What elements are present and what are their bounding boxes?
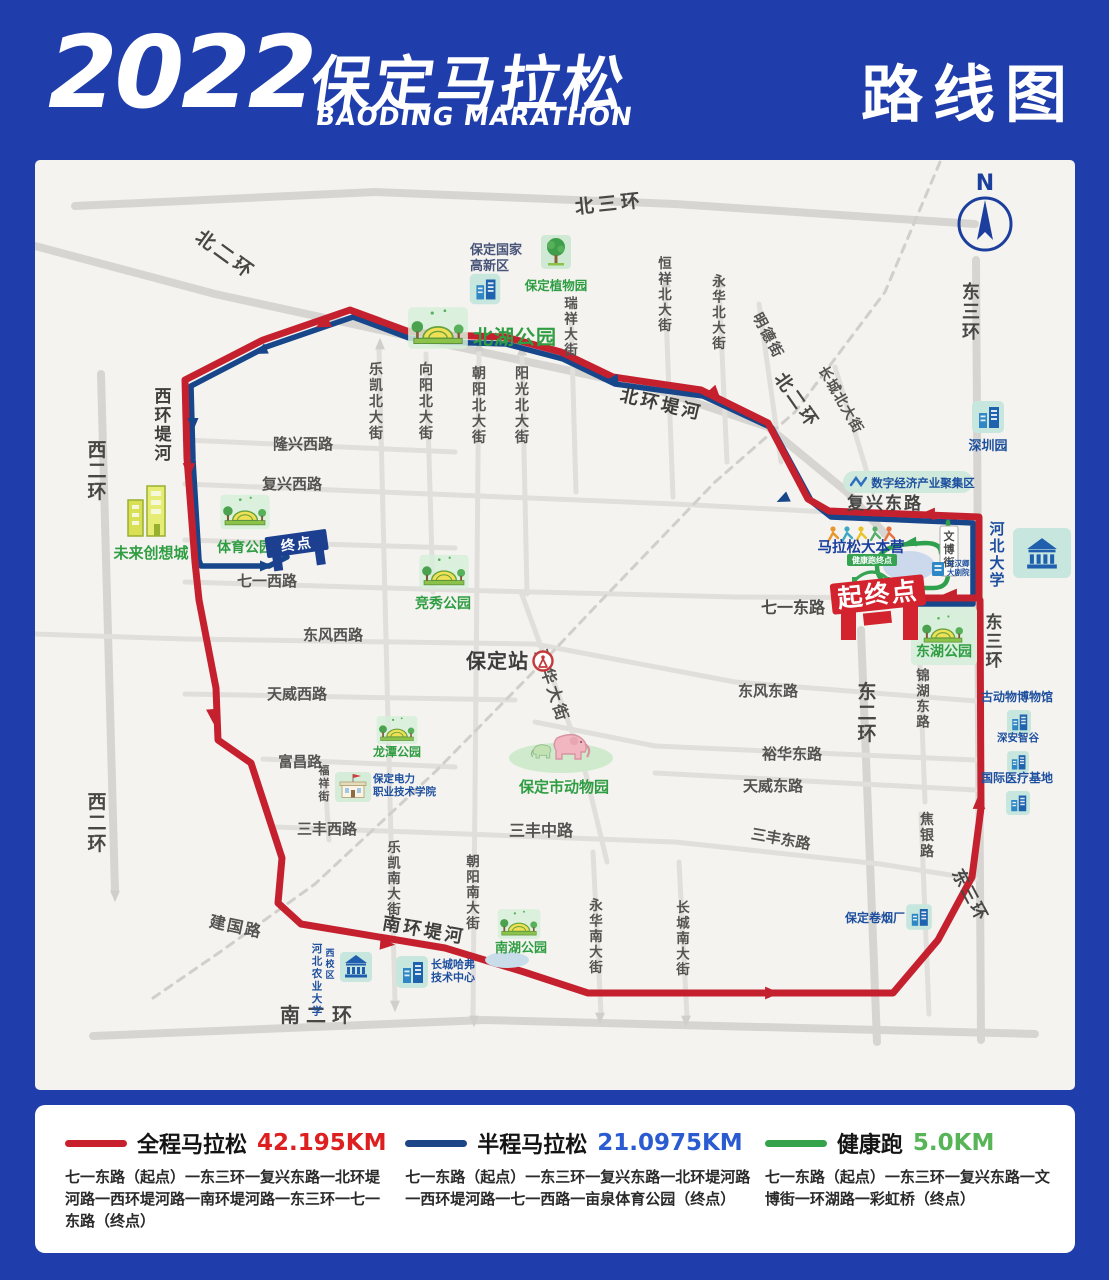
tree-icon xyxy=(541,235,571,269)
road-label-lekai_n: 乐凯北大街 xyxy=(368,361,383,442)
park-icon xyxy=(377,716,418,744)
landmark-dabenying: 马拉松大本营 xyxy=(818,526,905,556)
landmark-hebeidaxue: 河北大学 xyxy=(989,520,1071,589)
svg-text:健康跑终点: 健康跑终点 xyxy=(852,555,892,565)
landmark-dianli: 保定电力职业技术学院 xyxy=(335,772,436,802)
legend-route-full: 七一东路（起点）一东三环一复兴东路一北环堤河路一西环堤河路一南环堤河路一东三环一… xyxy=(65,1167,391,1232)
building-icon xyxy=(1007,751,1029,773)
road-label-ruixiang: 瑞祥大街 xyxy=(563,295,578,359)
building-icon xyxy=(972,401,1004,433)
railway-station-icon xyxy=(534,652,553,671)
landmark-nanhu: 南湖公园 xyxy=(485,909,547,968)
building-icon xyxy=(1006,791,1030,815)
road-label-chaoyang_n: 朝阳北大街 xyxy=(471,365,486,446)
legend-title-full: 全程马拉松 xyxy=(137,1127,247,1159)
landmark-haval-label: 长城哈弗技术中心 xyxy=(431,957,475,984)
legend-line-health xyxy=(765,1140,827,1147)
temple-icon xyxy=(340,952,372,982)
landmark-tiyu-label: 体育公园 xyxy=(217,539,273,556)
landmark-bdstation: 保定站 xyxy=(465,649,553,673)
road-label-w2h_s: 西二环 xyxy=(87,791,106,855)
park-icon xyxy=(920,614,967,646)
legend-line-full xyxy=(65,1140,127,1147)
road-label-tianwei_e: 天威东路 xyxy=(743,777,804,795)
landmark-yiliao-label: 国际医疗基地 xyxy=(981,770,1053,785)
landmark-jingxiu-label: 竞秀公园 xyxy=(415,595,471,612)
landmark-dabenying-label: 马拉松大本营 xyxy=(818,538,905,556)
legend-item-half: 半程马拉松21.0975KM七一东路（起点）一东三环一复兴东路一北环堤河路一西环… xyxy=(405,1127,751,1239)
landmark-donghu: 东湖公园 xyxy=(911,607,977,665)
landmark-donghu-label: 东湖公园 xyxy=(916,643,972,660)
park-icon xyxy=(408,307,468,348)
building-icon xyxy=(906,904,932,930)
landmark-nongda-label2: 西校区 xyxy=(325,948,335,981)
temple-icon xyxy=(1020,534,1063,575)
legend-title-health: 健康跑 xyxy=(837,1127,903,1159)
landmark-longtan: 龙潭公园 xyxy=(373,716,421,759)
park-icon xyxy=(498,909,541,939)
road-label-e2h: 东二环 xyxy=(857,680,876,745)
landmark-beihu-label: 北湖公园 xyxy=(473,325,557,349)
road-label-fuxing_e: 复兴东路 xyxy=(846,493,923,514)
road-label-fuxing_w: 复兴西路 xyxy=(261,475,323,493)
landmark-gaoxinqu: 保定国家高新区 xyxy=(469,242,523,304)
road-label-e3h_m: 东三环 xyxy=(986,612,1003,671)
road-label-changcheng_s: 长城南大街 xyxy=(675,899,690,978)
road-label-fuchang: 富昌路 xyxy=(278,753,322,771)
landmark-hebeidaxue-label: 河北大学 xyxy=(989,520,1004,589)
legend-route-health: 七一东路（起点）一东三环一复兴东路一文博街一环湖路一彩虹桥（终点） xyxy=(765,1167,1057,1211)
landmark-gaoxinqu-label: 保定国家高新区 xyxy=(469,242,523,274)
building-icon xyxy=(1007,710,1031,734)
legend-line-half xyxy=(405,1140,467,1147)
road-label-mingde: 明德街 xyxy=(749,310,788,362)
landmark-longtan-label: 龙潭公园 xyxy=(373,744,421,759)
landmark-shenzhenyuan: 深圳园 xyxy=(968,401,1007,454)
city-icon xyxy=(128,486,165,536)
landmark-nongda-label: 河北农业大学 xyxy=(311,943,323,1018)
road-label-jianguolu: 建国路 xyxy=(208,912,265,942)
half-finish-marker: 终点 xyxy=(264,529,330,572)
landmark-juanyan: 保定卷烟厂 xyxy=(844,904,932,930)
road-label-xihuandihe: 西环堤河 xyxy=(155,387,173,464)
road-label-lekai_s: 乐凯南大街 xyxy=(386,839,401,918)
landmark-yiliao: 国际医疗基地 xyxy=(981,770,1053,815)
building-icon xyxy=(396,956,428,988)
legend-route-half: 七一东路（起点）一东三环一复兴东路一北环堤河路一西环堤河路一七一西路一亩泉体育公… xyxy=(405,1167,751,1211)
road-label-dongfeng_e: 东风东路 xyxy=(738,682,799,700)
road-label-sanfeng_m: 三丰中路 xyxy=(509,821,574,840)
landmark-zhiwuyuan-label: 保定植物园 xyxy=(524,278,588,293)
landmark-shenan-label: 深安智谷 xyxy=(997,731,1039,744)
route-map: N 北三环北二环北二环西二环西二环南二环东二环东三环东三环东三环西环堤河北环堤河… xyxy=(35,160,1075,1090)
legend-panel: 全程马拉松42.195KM七一东路（起点）一东三环一复兴东路一北环堤河路一西环堤… xyxy=(35,1105,1075,1253)
road-label-changcheng_n: 长城北大街 xyxy=(815,363,867,436)
road-label-dongfeng_w: 东风西路 xyxy=(303,626,364,644)
landmark-shuzijingji-label: 数字经济产业聚集区 xyxy=(871,476,975,490)
landmark-guanhanqing-label: 关汉卿大剧院 xyxy=(947,558,970,577)
park-icon xyxy=(419,555,468,589)
road-label-sanfeng_w: 三丰西路 xyxy=(297,820,358,838)
header-year: 2022 xyxy=(48,14,314,131)
road-label-qiyi_w: 七一西路 xyxy=(237,572,298,590)
landmark-shuzijingji: 数字经济产业聚集区 xyxy=(843,471,975,493)
road-label-n2h_w: 北二环 xyxy=(191,226,260,284)
landmark-gudongwu: 古动物博物馆 xyxy=(981,689,1053,734)
road-label-jiaoyin: 焦银路 xyxy=(919,811,935,860)
landmark-zoo-label: 保定市动物园 xyxy=(518,778,609,796)
road-label-jinhu_e: 锦湖东路 xyxy=(916,667,930,731)
elephants-icon xyxy=(532,735,590,759)
landmark-tiyu: 体育公园 xyxy=(217,495,273,556)
landmark-beihu: 北湖公园 xyxy=(408,307,557,349)
header-title-en: BAODING MARATHON xyxy=(314,102,635,131)
legend-distance-full: 42.195KM xyxy=(257,1130,386,1156)
road-label-yonghua_s: 永华南大街 xyxy=(588,897,603,976)
road-label-yangguang_n: 阳光北大街 xyxy=(514,366,529,446)
landmark-shenzhenyuan-label: 深圳园 xyxy=(968,438,1007,454)
school-icon xyxy=(335,772,371,802)
road-label-chaoyang_s: 朝阳南大街 xyxy=(465,853,480,932)
landmark-gudongwu-label: 古动物博物馆 xyxy=(981,689,1053,704)
legend-item-health: 健康跑5.0KM七一东路（起点）一东三环一复兴东路一文博街一环湖路一彩虹桥（终点… xyxy=(765,1127,1057,1239)
landmark-nanhu-label: 南湖公园 xyxy=(495,940,547,956)
legend-title-half: 半程马拉松 xyxy=(477,1127,587,1159)
start-finish-marker: 起终点 xyxy=(830,574,928,640)
road-label-fuxiang: 福祥街 xyxy=(318,763,330,803)
landmark-guanhanqing: 关汉卿大剧院 xyxy=(932,558,970,577)
road-label-e3h_n: 东三环 xyxy=(962,281,980,343)
road-label-xiangyang_n: 向阳北大街 xyxy=(418,361,433,442)
road-label-n3h: 北三环 xyxy=(574,189,645,218)
park-icon xyxy=(220,495,269,529)
theatre-icon xyxy=(932,562,944,576)
landmark-dianli-label: 保定电力职业技术学院 xyxy=(372,772,436,798)
landmark-weilai-label: 未来创想城 xyxy=(112,544,188,562)
legend-distance-half: 21.0975KM xyxy=(597,1130,742,1156)
landmark-weilai: 未来创想城 xyxy=(112,486,188,562)
landmark-zhiwuyuan: 保定植物园 xyxy=(524,235,588,293)
landmark-juanyan-label: 保定卷烟厂 xyxy=(844,910,905,925)
road-label-longxing_w: 隆兴西路 xyxy=(273,435,334,453)
compass-icon: N xyxy=(959,171,1011,250)
landmark-shenan: 深安智谷 xyxy=(997,731,1039,773)
landmark-jingxiu: 竞秀公园 xyxy=(415,555,471,612)
legend-distance-health: 5.0KM xyxy=(913,1130,994,1156)
road-label-hengxiang_n: 恒祥北大街 xyxy=(657,255,672,334)
road-label-qiyi_e: 七一东路 xyxy=(761,598,826,617)
poster-page: 2022 保定马拉松 BAODING MARATHON 路线图 N 北三环北二环… xyxy=(0,0,1109,1280)
svg-text:N: N xyxy=(976,171,994,196)
building-icon xyxy=(470,274,500,304)
road-label-tianwei_w: 天威西路 xyxy=(267,685,328,703)
landmark-zoo: 保定市动物园 xyxy=(509,735,613,796)
legend-item-full: 全程马拉松42.195KM七一东路（起点）一东三环一复兴东路一北环堤河路一西环堤… xyxy=(65,1127,391,1239)
road-label-w2h_n: 西二环 xyxy=(87,439,106,503)
page-title: 路线图 xyxy=(861,44,1077,134)
road-label-yuhua_e: 裕华东路 xyxy=(761,745,823,763)
landmark-bdstation-label: 保定站 xyxy=(465,649,529,673)
road-label-yonghua_n: 永华北大街 xyxy=(711,273,726,352)
landmark-haval: 长城哈弗技术中心 xyxy=(396,956,475,988)
